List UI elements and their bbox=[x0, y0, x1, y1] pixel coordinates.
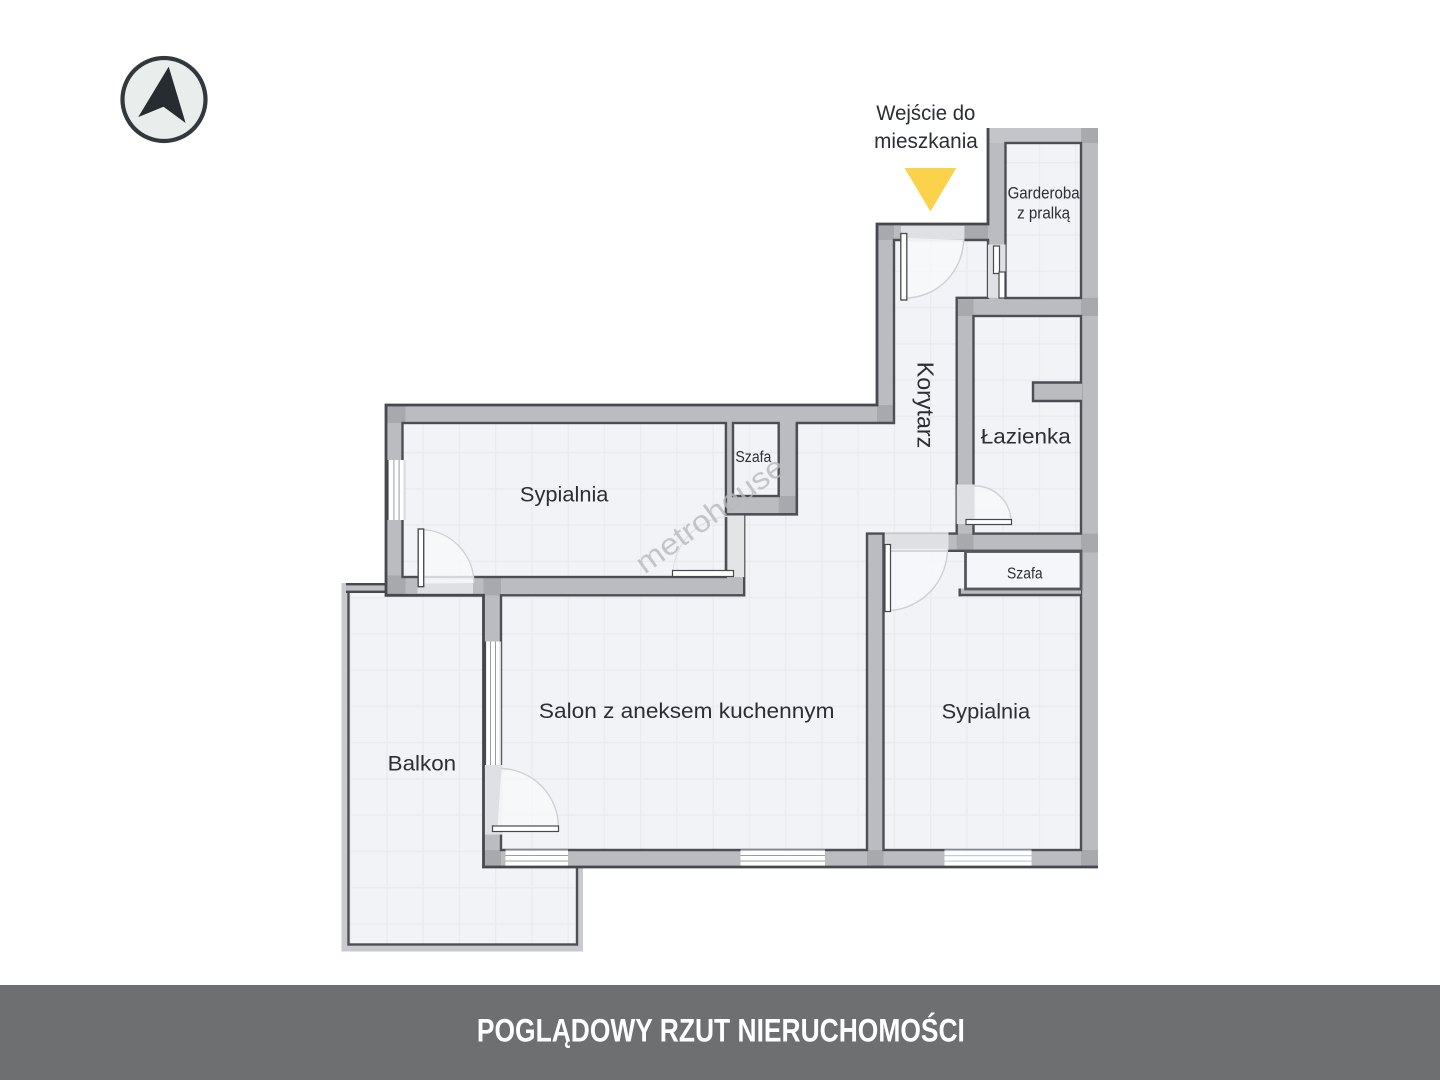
svg-text:Salon z aneksem kuchennym: Salon z aneksem kuchennym bbox=[539, 699, 835, 723]
svg-text:Wejście do: Wejście do bbox=[876, 102, 975, 125]
svg-text:Sypialnia: Sypialnia bbox=[942, 699, 1031, 723]
svg-text:Korytarz: Korytarz bbox=[913, 362, 939, 449]
svg-text:mieszkania: mieszkania bbox=[874, 130, 978, 153]
svg-text:Szafa: Szafa bbox=[1007, 566, 1043, 583]
svg-text:Sypialnia: Sypialnia bbox=[520, 483, 609, 507]
svg-text:Garderoba: Garderoba bbox=[1008, 184, 1080, 203]
svg-text:Szafa: Szafa bbox=[735, 449, 771, 466]
svg-text:Balkon: Balkon bbox=[388, 751, 456, 775]
svg-text:z pralką: z pralką bbox=[1017, 204, 1070, 223]
svg-text:Łazienka: Łazienka bbox=[981, 425, 1071, 449]
svg-text:POGLĄDOWY RZUT NIERUCHOMOŚCI: POGLĄDOWY RZUT NIERUCHOMOŚCI bbox=[477, 1012, 965, 1048]
